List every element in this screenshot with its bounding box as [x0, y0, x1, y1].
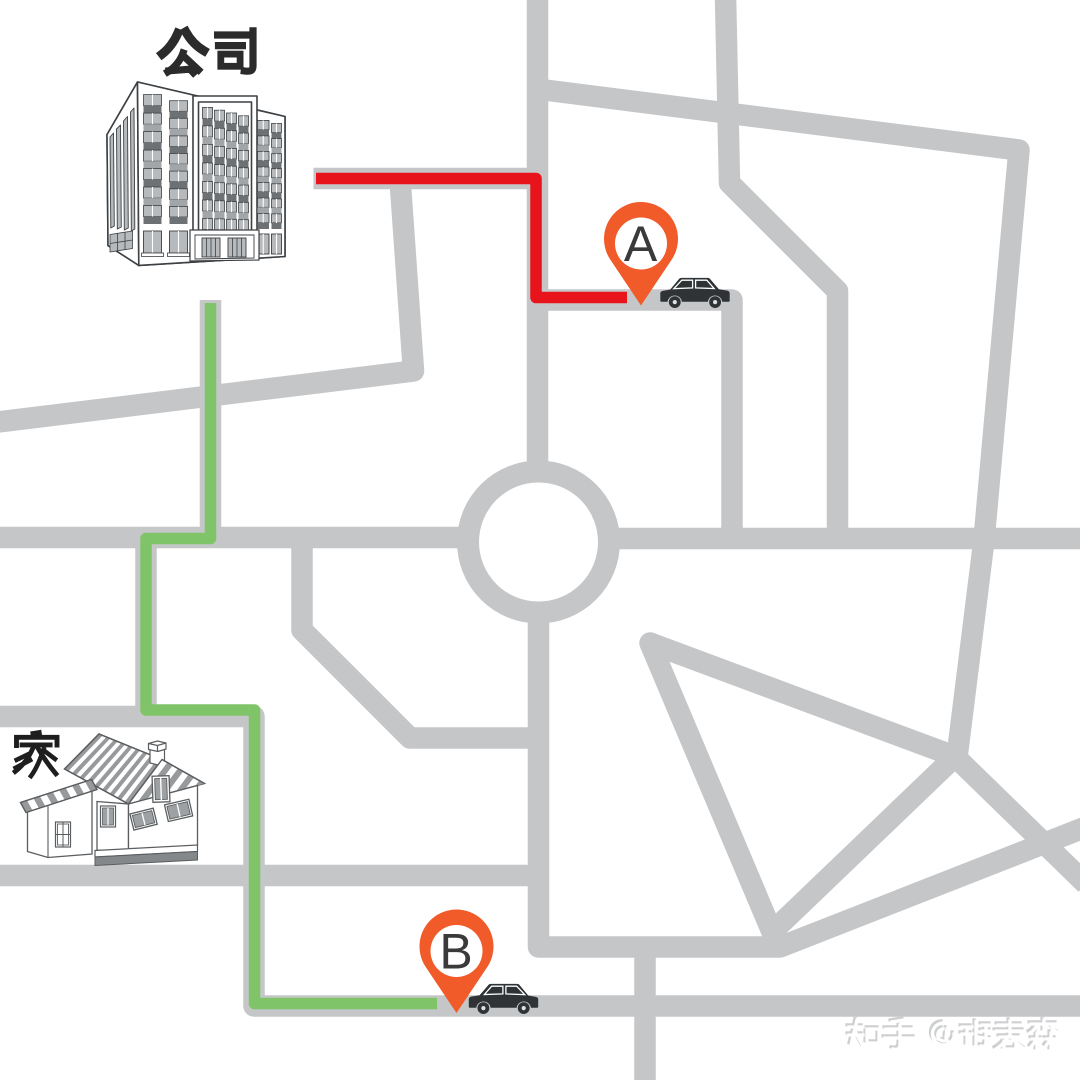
- svg-text:A: A: [624, 216, 658, 272]
- svg-text:B: B: [439, 924, 472, 980]
